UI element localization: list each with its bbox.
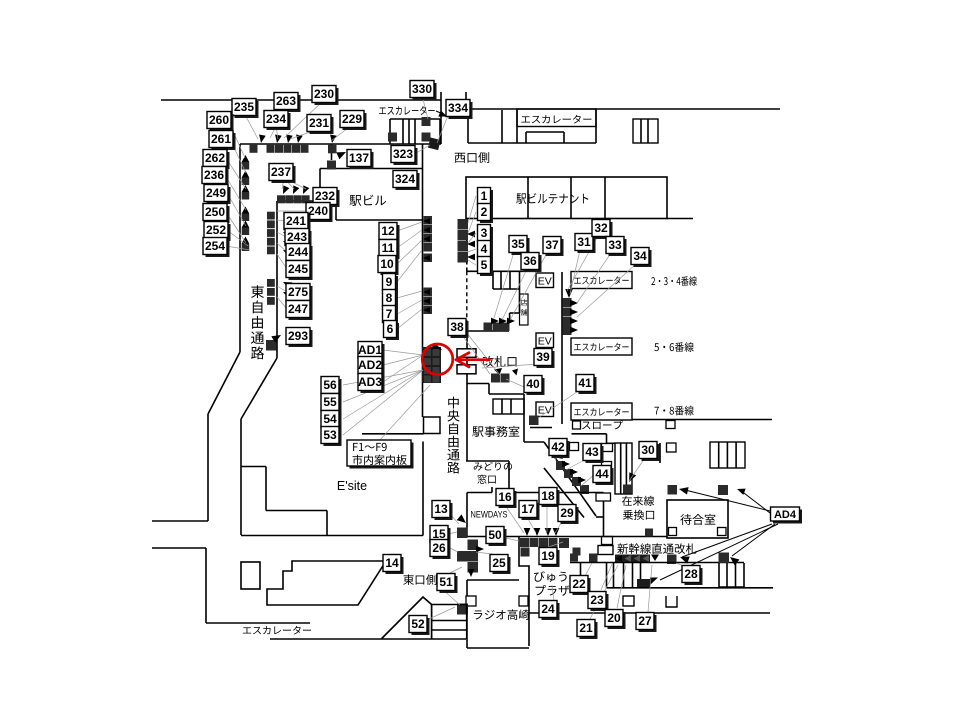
svg-text:38: 38: [450, 320, 464, 334]
svg-text:22: 22: [572, 577, 586, 591]
svg-text:234: 234: [266, 112, 286, 126]
svg-text:56: 56: [323, 378, 337, 392]
svg-text:137: 137: [349, 151, 369, 165]
svg-text:40: 40: [526, 377, 540, 391]
svg-text:254: 254: [205, 239, 225, 253]
svg-text:30: 30: [641, 443, 655, 457]
svg-text:17: 17: [521, 502, 535, 516]
svg-text:7: 7: [386, 307, 393, 321]
svg-text:2: 2: [481, 205, 488, 219]
svg-text:330: 330: [412, 82, 432, 96]
svg-text:323: 323: [393, 147, 413, 161]
svg-text:43: 43: [585, 445, 599, 459]
svg-text:293: 293: [288, 329, 308, 343]
svg-text:54: 54: [323, 412, 337, 426]
svg-text:36: 36: [523, 254, 537, 268]
svg-text:241: 241: [286, 214, 306, 228]
svg-text:31: 31: [577, 235, 591, 249]
svg-text:19: 19: [541, 549, 555, 563]
svg-text:262: 262: [205, 151, 225, 165]
svg-text:237: 237: [271, 165, 291, 179]
svg-text:28: 28: [684, 567, 698, 581]
svg-text:50: 50: [488, 528, 502, 542]
svg-text:33: 33: [608, 238, 622, 252]
svg-text:275: 275: [288, 285, 308, 299]
svg-text:AD1: AD1: [358, 343, 382, 357]
svg-text:34: 34: [633, 249, 647, 263]
svg-text:26: 26: [432, 541, 446, 555]
svg-text:51: 51: [439, 575, 453, 589]
svg-text:24: 24: [541, 602, 555, 616]
svg-text:235: 235: [234, 100, 254, 114]
svg-text:14: 14: [385, 556, 399, 570]
svg-text:4: 4: [481, 242, 488, 256]
svg-text:20: 20: [607, 611, 621, 625]
svg-text:12: 12: [381, 224, 395, 238]
svg-text:236: 236: [204, 168, 224, 182]
svg-text:243: 243: [287, 230, 307, 244]
svg-text:232: 232: [315, 189, 335, 203]
svg-text:6: 6: [387, 322, 394, 336]
svg-text:23: 23: [590, 593, 604, 607]
svg-text:3: 3: [481, 226, 488, 240]
svg-text:32: 32: [594, 221, 608, 235]
svg-text:5: 5: [481, 258, 488, 272]
svg-text:21: 21: [579, 621, 593, 635]
svg-text:NEWDAYS: NEWDAYS: [471, 510, 508, 521]
svg-text:25: 25: [492, 556, 506, 570]
svg-text:1: 1: [481, 189, 488, 203]
svg-text:35: 35: [511, 237, 525, 251]
svg-text:240: 240: [308, 204, 328, 218]
svg-text:29: 29: [560, 506, 574, 520]
svg-text:249: 249: [206, 186, 226, 200]
svg-text:EV: EV: [538, 276, 552, 288]
svg-text:260: 260: [209, 113, 229, 127]
svg-text:231: 231: [309, 116, 329, 130]
svg-text:EV: EV: [538, 336, 552, 348]
svg-text:261: 261: [211, 132, 231, 146]
svg-text:37: 37: [545, 238, 559, 252]
svg-text:263: 263: [276, 94, 296, 108]
svg-text:247: 247: [288, 302, 308, 316]
svg-text:AD3: AD3: [358, 375, 382, 389]
svg-text:55: 55: [323, 395, 337, 409]
svg-text:53: 53: [323, 428, 337, 442]
svg-text:E'site: E'site: [337, 479, 367, 493]
svg-text:13: 13: [434, 502, 448, 516]
svg-text:10: 10: [380, 257, 394, 271]
svg-text:334: 334: [448, 101, 468, 115]
svg-text:324: 324: [395, 172, 415, 186]
svg-text:27: 27: [638, 614, 652, 628]
svg-text:229: 229: [342, 112, 362, 126]
svg-text:245: 245: [288, 262, 308, 276]
svg-text:41: 41: [578, 376, 592, 390]
svg-text:39: 39: [536, 350, 550, 364]
svg-text:52: 52: [411, 617, 425, 631]
svg-text:244: 244: [288, 245, 308, 259]
svg-text:250: 250: [205, 205, 225, 219]
svg-text:9: 9: [386, 275, 393, 289]
svg-text:252: 252: [206, 223, 226, 237]
svg-text:18: 18: [541, 489, 555, 503]
svg-text:42: 42: [551, 440, 565, 454]
svg-text:16: 16: [498, 490, 512, 504]
svg-text:44: 44: [595, 467, 609, 481]
svg-text:230: 230: [314, 87, 334, 101]
svg-text:AD4: AD4: [774, 509, 797, 521]
svg-text:AD2: AD2: [358, 358, 382, 372]
svg-text:8: 8: [386, 291, 393, 305]
svg-text:11: 11: [382, 241, 395, 255]
